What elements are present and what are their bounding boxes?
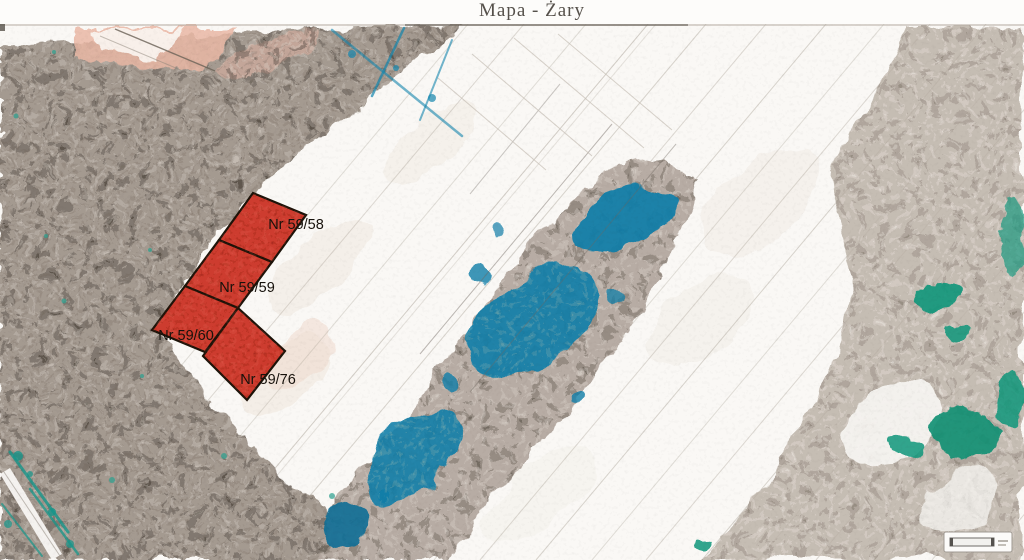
parcel-label-59-76: Nr 59/76	[240, 372, 296, 388]
map-title: Mapa - Żary	[479, 0, 585, 21]
map-canvas: Nr 59/58Nr 59/59Nr 59/60Nr 59/76	[0, 24, 1024, 560]
scan-grain	[0, 24, 1024, 560]
scanned-map-page: Mapa - Żary	[0, 0, 1024, 560]
parcel-label-59-60: Nr 59/60	[158, 328, 214, 344]
parcel-label-59-58: Nr 59/58	[268, 217, 324, 233]
parcel-label-59-59: Nr 59/59	[219, 280, 275, 296]
scale-bar	[944, 532, 1012, 552]
map-frame: Nr 59/58Nr 59/59Nr 59/60Nr 59/76	[0, 24, 1024, 560]
title-bar: Mapa - Żary	[0, 0, 1024, 24]
